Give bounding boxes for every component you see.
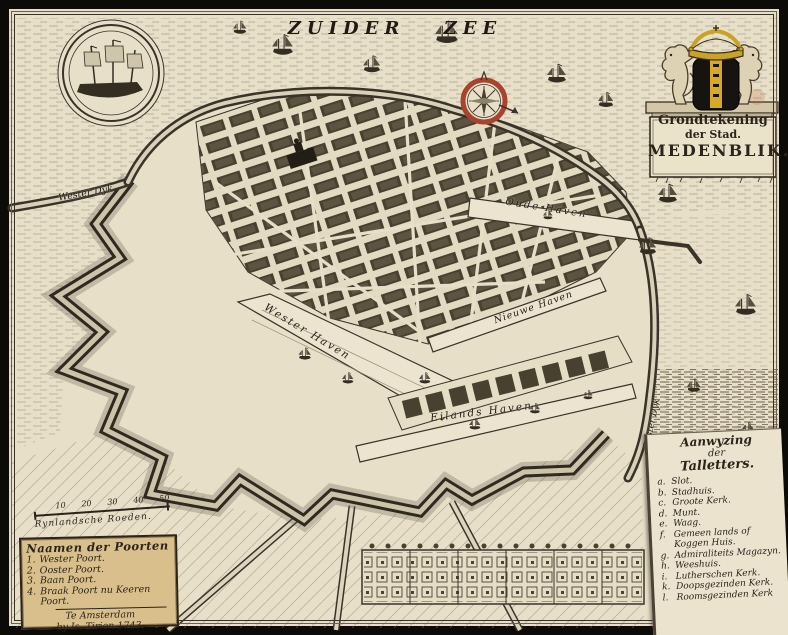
legend-gates: Naamen der Poorten 1.Wester Poort. 2.Oos… (19, 534, 179, 630)
legend-letters: Aanwyzing der Talletters. a.Slot. b.Stad… (644, 428, 788, 635)
zuider-zee-label: ZUIDER ZEE (250, 18, 540, 39)
cartouche-line1: Grondtekening (648, 114, 778, 128)
cartouche-line3: MEDENBLIK. (648, 141, 778, 161)
city-cartouche: Grondtekening der Stad. MEDENBLIK. (648, 114, 778, 161)
ship-medallion (58, 20, 164, 126)
antique-map-medemblik: ZUIDER ZEE Wester Dyk Oude Haven Nieuwe … (0, 0, 788, 635)
gate-item: 4.Braak Poort nu Keeren Poort. (27, 584, 172, 608)
cartouche-line2: der Stad. (648, 128, 778, 141)
age-spot (749, 89, 765, 105)
garden-parcels (362, 544, 644, 605)
shield (693, 58, 739, 110)
